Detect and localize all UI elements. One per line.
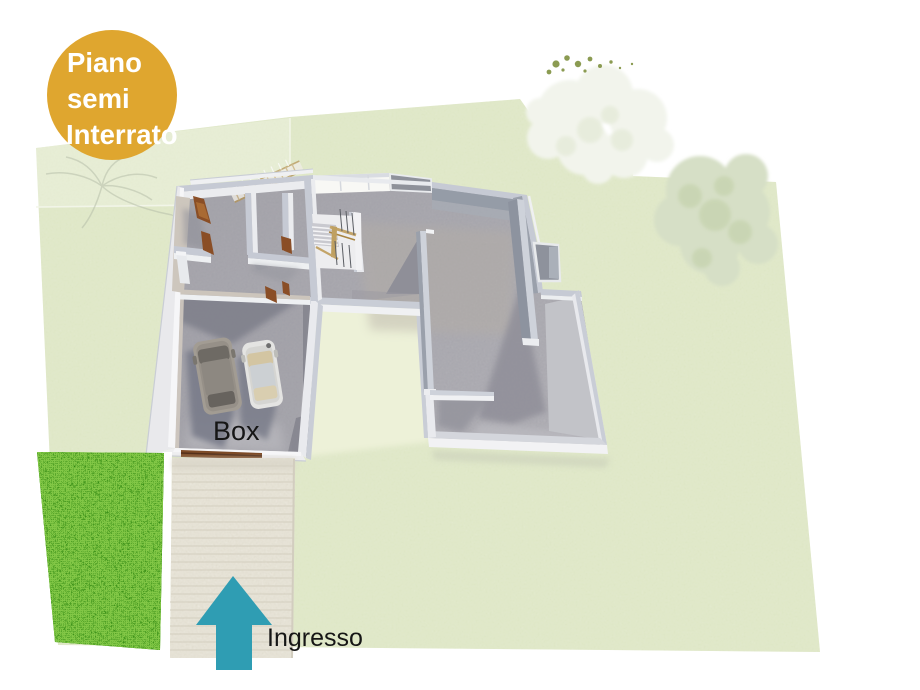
svg-text:Piano: Piano xyxy=(67,47,142,78)
svg-text:Box: Box xyxy=(213,416,260,446)
svg-text:Interrato: Interrato xyxy=(66,119,178,150)
svg-text:semi: semi xyxy=(67,83,130,114)
svg-text:Ingresso: Ingresso xyxy=(267,624,363,652)
